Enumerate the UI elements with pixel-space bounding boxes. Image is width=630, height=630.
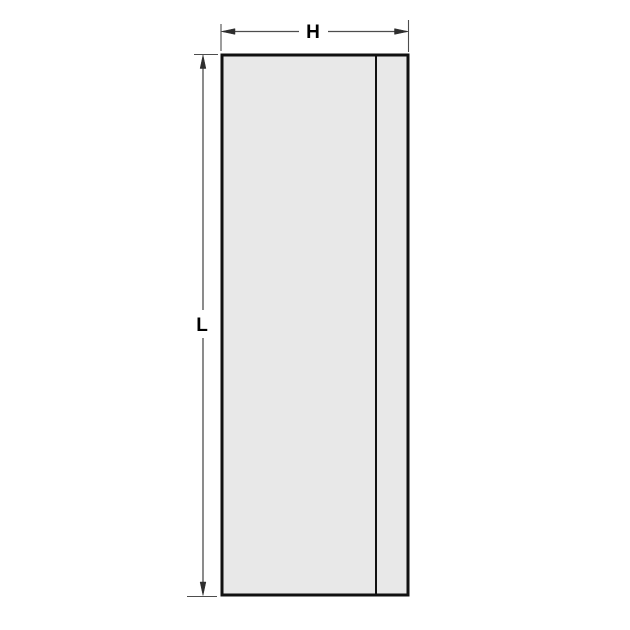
diagram-canvas: H L bbox=[0, 0, 630, 630]
l-arrow-bottom-icon bbox=[200, 582, 206, 596]
length-dimension-label: L bbox=[196, 315, 208, 336]
dimension-diagram: H L bbox=[0, 0, 630, 630]
h-arrow-left-icon bbox=[222, 29, 236, 35]
h-arrow-right-icon bbox=[395, 29, 409, 35]
panel-body bbox=[222, 55, 408, 595]
width-dimension-label: H bbox=[306, 22, 320, 43]
l-arrow-top-icon bbox=[200, 55, 206, 69]
